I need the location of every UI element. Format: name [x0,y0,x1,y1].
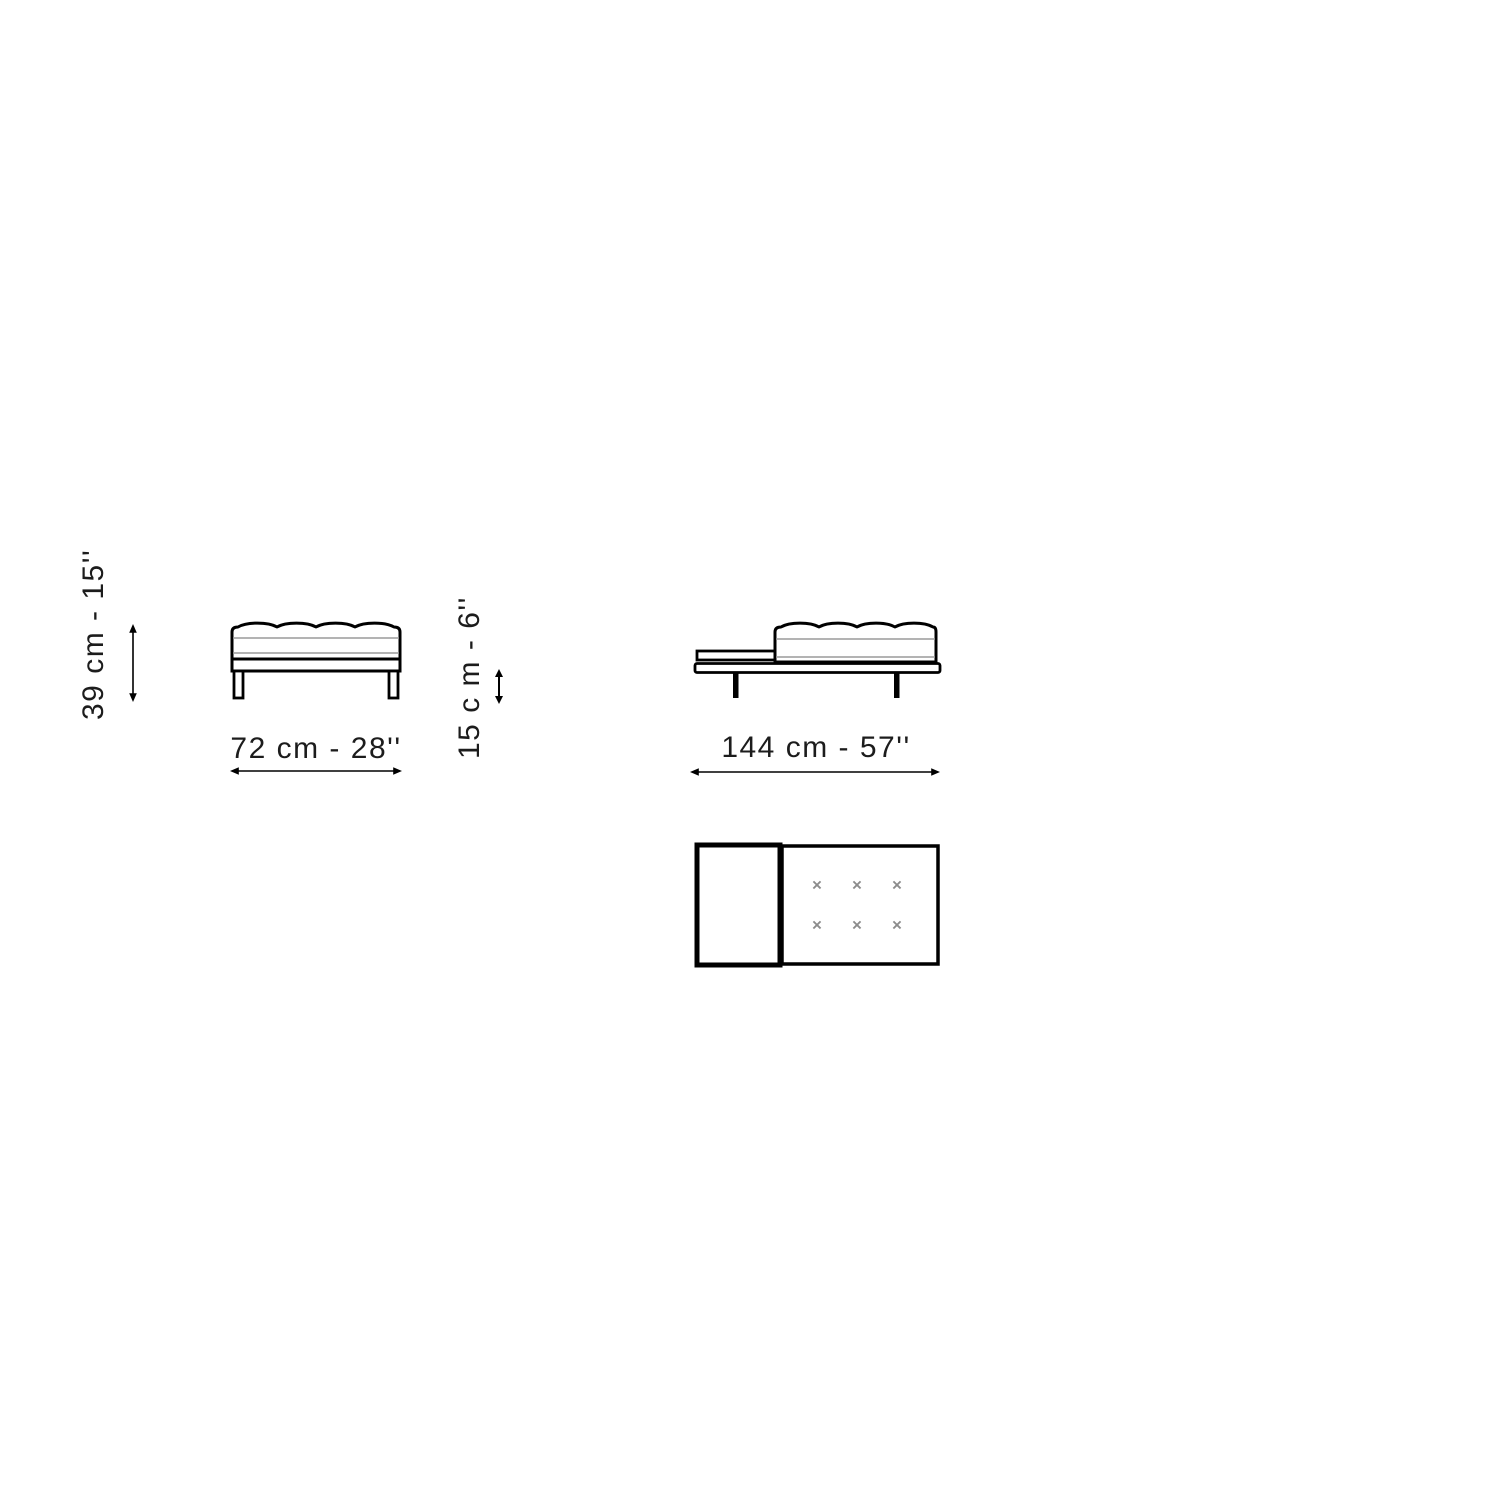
daybed-side-view-drawing [685,613,950,708]
tufting-mark-icon: × [852,876,862,895]
front-height-label: 39 cm - 15'' [76,550,112,720]
side-width-arrow-icon [690,765,940,779]
daybed-top-view-drawing: × × × × × × [690,838,946,974]
tufting-mark-icon: × [892,916,902,935]
bench-front-view-drawing [222,613,412,708]
diagram-canvas: 39 cm - 15'' 72 cm - 28'' 15 c m - 6'' [0,0,1500,1500]
tufting-mark-icon: × [892,876,902,895]
front-height-arrow-icon [126,624,140,702]
front-width-arrow-icon [230,764,402,778]
table-height-label: 15 c m - 6'' [452,609,488,759]
side-width-label: 144 cm - 57'' [692,730,940,766]
tufting-mark-icon: × [812,916,822,935]
front-width-label: 72 cm - 28'' [216,731,416,767]
tufting-mark-icon: × [852,916,862,935]
table-height-arrow-icon [492,669,506,704]
tufting-mark-icon: × [812,876,822,895]
